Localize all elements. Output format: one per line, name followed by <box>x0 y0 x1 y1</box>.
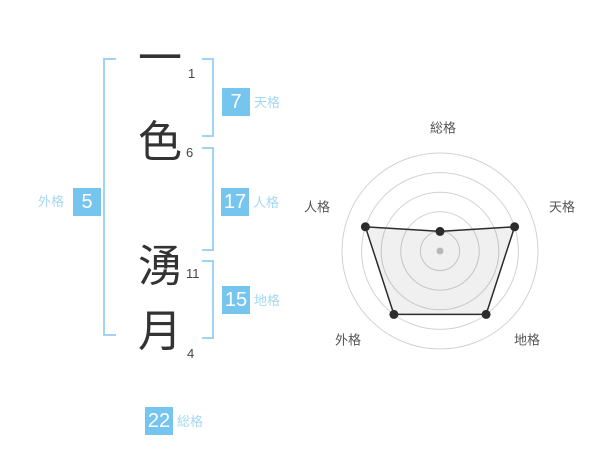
name-char-2: 色 <box>138 121 182 165</box>
radar-axis-label-0: 総格 <box>430 121 456 136</box>
kaku-radar-chart: 総格天格地格外格人格 <box>298 108 590 360</box>
radar-data-point <box>361 222 370 231</box>
stroke-count-2: 6 <box>186 146 193 159</box>
chikaku-label: 地格 <box>254 294 280 307</box>
name-char-4: 月 <box>138 310 182 354</box>
radar-data-point <box>482 310 491 319</box>
jinkaku-value-box: 17 <box>221 188 249 216</box>
radar-data-polygon <box>365 227 514 315</box>
stroke-count-1: 1 <box>188 67 195 80</box>
radar-axis-label-3: 外格 <box>335 333 361 348</box>
bracket-gaikaku <box>103 58 116 336</box>
gaikaku-value-box: 5 <box>73 188 101 216</box>
radar-data-point <box>436 227 445 236</box>
jinkaku-label: 人格 <box>253 196 279 209</box>
soukaku-value-box: 22 <box>145 407 173 435</box>
tenkaku-label: 天格 <box>254 96 280 109</box>
bracket-jinkaku <box>202 147 214 251</box>
radar-axis-label-1: 天格 <box>549 200 575 215</box>
radar-axis-label-4: 人格 <box>304 200 330 215</box>
tenkaku-value-box: 7 <box>222 88 250 116</box>
soukaku-label: 総格 <box>177 415 203 428</box>
bracket-tenkaku <box>202 58 214 137</box>
gaikaku-label: 外格 <box>38 195 64 208</box>
stroke-count-3: 11 <box>186 267 200 280</box>
radar-data-point <box>389 310 398 319</box>
radar-chart-svg: 総格天格地格外格人格 <box>298 108 590 360</box>
chikaku-value-box: 15 <box>222 286 250 314</box>
seimei-handan-panel: 一 色 湧 月 1 6 11 4 7 天格 17 人格 15 地格 外格 5 2… <box>0 0 600 470</box>
stroke-count-4: 4 <box>187 347 194 360</box>
bracket-chikaku <box>202 260 214 339</box>
radar-center-dot <box>437 248 444 255</box>
name-char-3: 湧 <box>138 245 182 289</box>
radar-axis-label-2: 地格 <box>514 333 540 348</box>
name-char-1: 一 <box>138 37 182 81</box>
radar-data-point <box>510 222 519 231</box>
